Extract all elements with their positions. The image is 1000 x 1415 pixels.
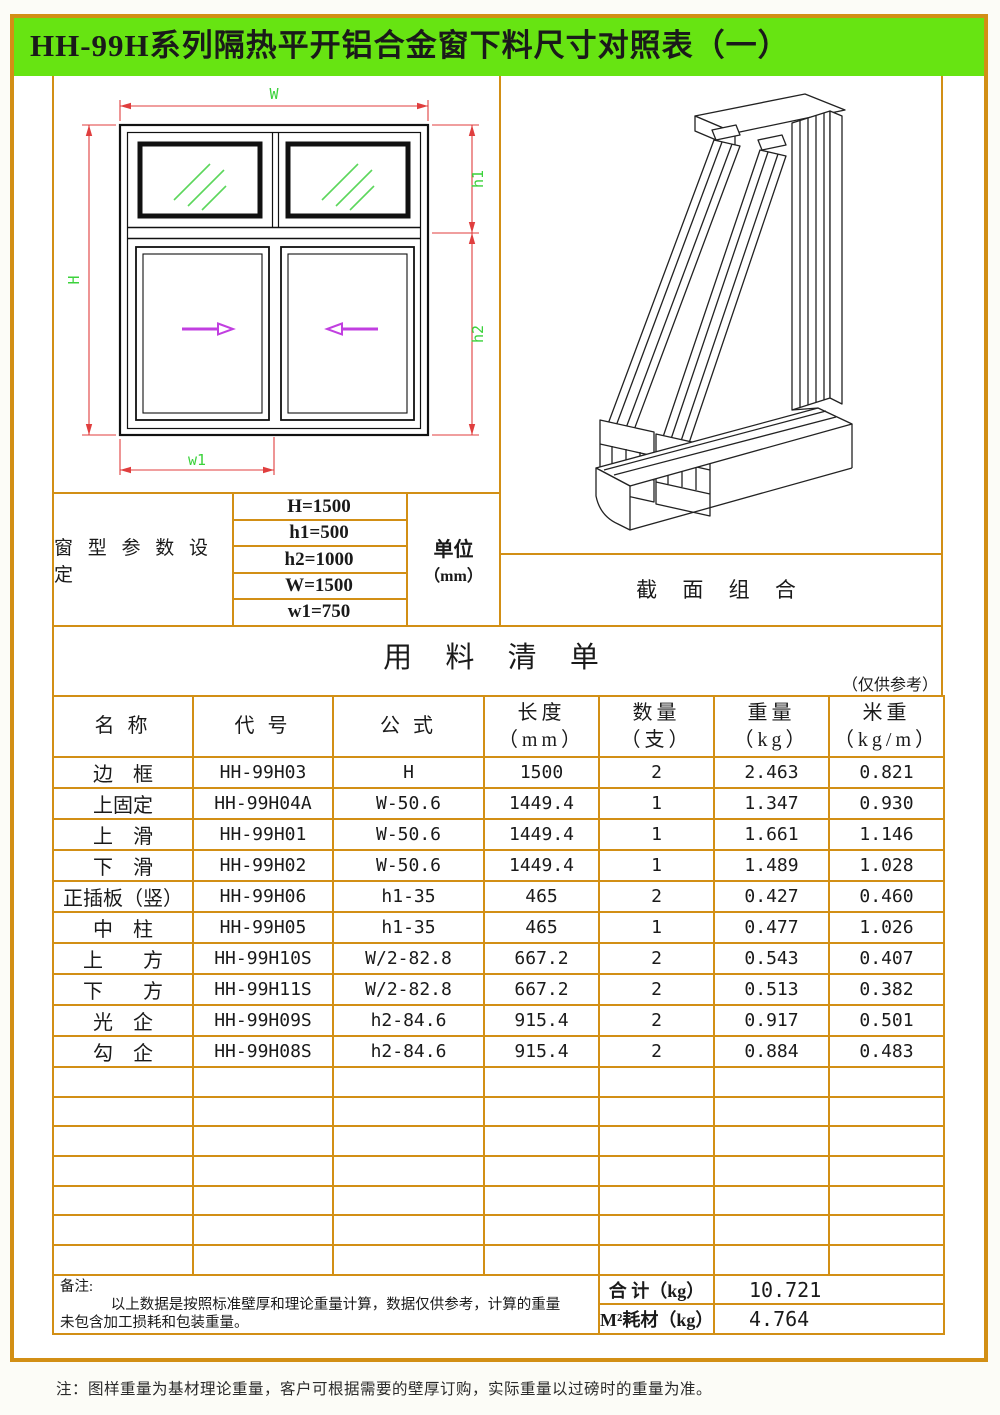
empty-row [53,1126,944,1156]
material-cell: 0.501 [829,1005,944,1036]
fixed-pane [140,144,408,216]
material-cell: h1-35 [333,881,484,912]
parameter-group-label: 窗 型 参 数 设 定 [54,494,232,625]
empty-row [53,1186,944,1216]
empty-cell [829,1067,944,1097]
material-cell: 1 [599,819,714,850]
material-cell: 1449.4 [484,819,599,850]
unit-label: 单位 [434,533,474,562]
material-cell: 1 [599,850,714,881]
empty-cell [829,1215,944,1245]
total-value: 10.721 [714,1275,944,1305]
material-cell: 1.347 [714,788,829,819]
empty-cell [829,1245,944,1275]
material-cell: H [333,757,484,788]
material-cell: 1.489 [714,850,829,881]
material-cell: HH-99H08S [193,1036,333,1067]
empty-cell [193,1215,333,1245]
material-row: 光 企HH-99H09Sh2-84.6915.420.9170.501 [53,1005,944,1036]
empty-cell [53,1126,193,1156]
material-cell: 915.4 [484,1005,599,1036]
empty-cell [599,1067,714,1097]
material-cell: W-50.6 [333,788,484,819]
empty-cell [714,1067,829,1097]
material-cell: 上 滑 [53,819,193,850]
reference-note: （仅供参考） [842,677,938,695]
empty-cell [193,1156,333,1186]
material-cell: 1 [599,912,714,943]
remark-cell: 备注: 以上数据是按照标准壁厚和理论重量计算，数据仅供参考，计算的重量 未包含加… [53,1275,599,1334]
cross-section-caption: 截 面 组 合 [501,553,941,625]
material-cell: 465 [484,881,599,912]
material-cell: 1.146 [829,819,944,850]
material-cell: 1500 [484,757,599,788]
material-cell: W/2-82.8 [333,974,484,1005]
material-cell: 2 [599,1036,714,1067]
unit-sub: （mm） [424,562,483,586]
material-cell: 0.427 [714,881,829,912]
column-header: 名 称 [53,696,193,757]
material-cell: HH-99H05 [193,912,333,943]
empty-cell [829,1097,944,1127]
empty-cell [53,1097,193,1127]
material-cell: HH-99H01 [193,819,333,850]
material-cell: 上 方 [53,943,193,974]
empty-cell [193,1245,333,1275]
parameter-value-list: H=1500h1=500h2=1000W=1500w1=750 [234,494,404,625]
per-sqm-label: M²耗材（kg） [599,1304,714,1334]
divider [941,76,943,627]
parameter-value: h2=1000 [234,546,404,572]
empty-cell [193,1186,333,1216]
empty-cell [53,1067,193,1097]
dim-label-w1: w1 [188,451,206,469]
material-cell: 0.930 [829,788,944,819]
per-sqm-value: 4.764 [714,1304,944,1334]
material-cell: 2 [599,757,714,788]
material-row: 下 方HH-99H11SW/2-82.8667.220.5130.382 [53,974,944,1005]
remark-line: 以上数据是按照标准壁厚和理论重量计算，数据仅供参考，计算的重量 [60,1296,590,1314]
empty-cell [333,1097,484,1127]
parameter-value: h1=500 [234,520,404,546]
material-cell: 光 企 [53,1005,193,1036]
material-row: 上 滑HH-99H01W-50.61449.411.6611.146 [53,819,944,850]
material-cell: 下 滑 [53,850,193,881]
parameter-value: H=1500 [234,494,404,520]
dim-label-h2: h2 [469,325,487,343]
material-cell: 正插板（竖） [53,881,193,912]
material-cell: 0.917 [714,1005,829,1036]
material-cell: 667.2 [484,943,599,974]
material-cell: h2-84.6 [333,1036,484,1067]
material-row: 边 框HH-99H03H150022.4630.821 [53,757,944,788]
material-cell: 1449.4 [484,850,599,881]
empty-cell [829,1156,944,1186]
material-cell: HH-99H03 [193,757,333,788]
material-cell: 2 [599,974,714,1005]
empty-cell [333,1156,484,1186]
material-row: 上固定HH-99H04AW-50.61449.411.3470.930 [53,788,944,819]
empty-cell [484,1245,599,1275]
empty-cell [714,1126,829,1156]
empty-cell [333,1215,484,1245]
empty-cell [599,1215,714,1245]
material-cell: 667.2 [484,974,599,1005]
material-cell: 0.483 [829,1036,944,1067]
material-cell: 边 框 [53,757,193,788]
empty-cell [193,1067,333,1097]
material-list-title: 用 料 清 单 [383,642,612,674]
empty-cell [333,1186,484,1216]
totals-row: 备注: 以上数据是按照标准壁厚和理论重量计算，数据仅供参考，计算的重量 未包含加… [53,1275,944,1305]
material-cell: 2 [599,943,714,974]
material-cell: 2.463 [714,757,829,788]
material-cell: 0.543 [714,943,829,974]
empty-cell [829,1186,944,1216]
material-cell: W/2-82.8 [333,943,484,974]
empty-cell [599,1126,714,1156]
empty-cell [333,1126,484,1156]
empty-cell [599,1186,714,1216]
empty-cell [53,1156,193,1186]
empty-cell [714,1245,829,1275]
empty-row [53,1245,944,1275]
dim-label-w: W [269,85,279,103]
material-cell: 0.884 [714,1036,829,1067]
table-header-row: 名 称代 号公 式长度（mm）数量（支）重量（kg）米重（kg/m） [53,696,944,757]
remark-label: 备注: [60,1278,590,1296]
material-cell: h2-84.6 [333,1005,484,1036]
material-cell: HH-99H10S [193,943,333,974]
material-list-title-row: 用 料 清 单 （仅供参考） [52,625,943,697]
empty-row [53,1215,944,1245]
empty-cell [193,1126,333,1156]
page-title: HH-99H系列隔热平开铝合金窗下料尺寸对照表（一） [14,18,984,76]
material-cell: 勾 企 [53,1036,193,1067]
empty-cell [193,1097,333,1127]
material-cell: 0.407 [829,943,944,974]
material-row: 下 滑HH-99H02W-50.61449.411.4891.028 [53,850,944,881]
material-cell: W-50.6 [333,850,484,881]
material-cell: 1449.4 [484,788,599,819]
empty-cell [829,1126,944,1156]
material-cell: 上固定 [53,788,193,819]
material-cell: 0.513 [714,974,829,1005]
spec-sheet-page: HH-99H系列隔热平开铝合金窗下料尺寸对照表（一） [0,0,1000,1415]
empty-cell [714,1097,829,1127]
empty-cell [599,1156,714,1186]
material-cell: HH-99H06 [193,881,333,912]
material-list-table: 名 称代 号公 式长度（mm）数量（支）重量（kg）米重（kg/m） 边 框HH… [52,695,945,1335]
material-cell: 2 [599,881,714,912]
material-row: 中 柱HH-99H05h1-3546510.4771.026 [53,912,944,943]
material-cell: 465 [484,912,599,943]
material-cell: 0.460 [829,881,944,912]
column-header: 代 号 [193,696,333,757]
empty-cell [714,1186,829,1216]
unit-cell: 单位 （mm） [408,494,499,625]
column-header: 长度（mm） [484,696,599,757]
slide-direction-arrows [182,324,378,335]
parameter-value: w1=750 [234,599,404,625]
empty-cell [484,1067,599,1097]
empty-cell [484,1097,599,1127]
material-cell: 1.028 [829,850,944,881]
empty-cell [53,1215,193,1245]
empty-row [53,1156,944,1186]
column-header: 重量（kg） [714,696,829,757]
material-cell: HH-99H04A [193,788,333,819]
empty-cell [714,1156,829,1186]
material-cell: HH-99H09S [193,1005,333,1036]
empty-cell [714,1215,829,1245]
sliding-sash [136,247,414,420]
material-cell: 1.661 [714,819,829,850]
empty-cell [484,1186,599,1216]
material-cell: W-50.6 [333,819,484,850]
column-header: 米重（kg/m） [829,696,944,757]
material-cell: 0.477 [714,912,829,943]
material-cell: 0.821 [829,757,944,788]
window-elevation-drawing: W H h1 h2 w1 [52,76,499,490]
total-label: 合 计（kg） [599,1275,714,1305]
material-cell: 下 方 [53,974,193,1005]
dim-label-h: H [65,275,83,284]
empty-cell [333,1067,484,1097]
remark-line: 未包含加工损耗和包装重量。 [60,1314,590,1332]
material-cell: 中 柱 [53,912,193,943]
material-cell: h1-35 [333,912,484,943]
empty-cell [484,1126,599,1156]
empty-cell [484,1215,599,1245]
empty-cell [484,1156,599,1186]
material-cell: HH-99H11S [193,974,333,1005]
material-row: 勾 企HH-99H08Sh2-84.6915.420.8840.483 [53,1036,944,1067]
column-header: 公 式 [333,696,484,757]
empty-cell [599,1245,714,1275]
empty-cell [53,1245,193,1275]
material-cell: 1.026 [829,912,944,943]
material-row: 上 方HH-99H10SW/2-82.8667.220.5430.407 [53,943,944,974]
empty-row [53,1067,944,1097]
empty-cell [53,1186,193,1216]
material-row: 正插板（竖）HH-99H06h1-3546520.4270.460 [53,881,944,912]
material-cell: 0.382 [829,974,944,1005]
empty-cell [599,1097,714,1127]
material-cell: 1 [599,788,714,819]
material-cell: HH-99H02 [193,850,333,881]
material-cell: 915.4 [484,1036,599,1067]
column-header: 数量（支） [599,696,714,757]
empty-cell [333,1245,484,1275]
parameter-value: W=1500 [234,573,404,599]
cross-section-drawing [500,78,941,550]
empty-row [53,1097,944,1127]
material-cell: 2 [599,1005,714,1036]
bottom-note: 注：图样重量为基材理论重量，客户可根据需要的壁厚订购，实际重量以过磅时的重量为准… [56,1377,712,1399]
dim-label-h1: h1 [469,170,487,188]
